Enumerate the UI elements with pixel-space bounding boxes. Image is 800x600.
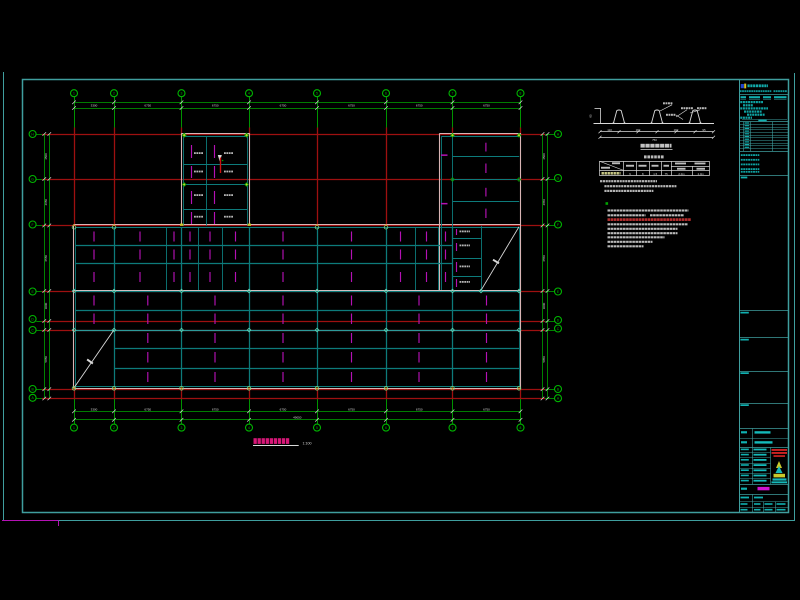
svg-text:F: F xyxy=(557,223,559,227)
svg-text:5: 5 xyxy=(316,92,318,96)
svg-text:2.0m: 2.0m xyxy=(678,172,685,176)
svg-text:65: 65 xyxy=(589,114,593,117)
svg-text:750: 750 xyxy=(652,138,657,142)
svg-text:4500: 4500 xyxy=(44,153,48,160)
svg-text:4: 4 xyxy=(248,426,250,430)
svg-text:6550: 6550 xyxy=(44,255,48,262)
svg-text:6750: 6750 xyxy=(144,407,151,411)
svg-text:3300: 3300 xyxy=(91,407,98,411)
svg-text:4: 4 xyxy=(248,92,250,96)
svg-text:8: 8 xyxy=(520,92,522,96)
svg-text:6750: 6750 xyxy=(483,407,490,411)
svg-text:183: 183 xyxy=(674,128,679,132)
svg-text:95: 95 xyxy=(702,128,706,132)
svg-text:G: G xyxy=(557,176,560,180)
svg-text:F: F xyxy=(32,223,34,227)
svg-text:3300: 3300 xyxy=(91,104,98,108)
svg-text:6750: 6750 xyxy=(212,407,219,411)
svg-text:6750: 6750 xyxy=(212,104,219,108)
svg-text:4650: 4650 xyxy=(44,199,48,206)
svg-text:1:100: 1:100 xyxy=(303,441,312,445)
svg-text:7: 7 xyxy=(452,92,454,96)
svg-text:6: 6 xyxy=(385,92,387,96)
svg-text:8: 8 xyxy=(520,426,522,430)
svg-text:1.5: 1.5 xyxy=(653,172,657,176)
svg-text:6750: 6750 xyxy=(348,407,355,411)
svg-text:6750: 6750 xyxy=(416,104,423,108)
svg-text:3000: 3000 xyxy=(542,302,546,309)
svg-text:7: 7 xyxy=(452,426,454,430)
svg-text:6750: 6750 xyxy=(483,104,490,108)
svg-text:6750: 6750 xyxy=(280,104,287,108)
svg-text:1: 1 xyxy=(73,426,75,430)
svg-text:75: 75 xyxy=(665,172,669,176)
svg-text:2: 2 xyxy=(113,426,115,430)
svg-text:2: 2 xyxy=(113,92,115,96)
svg-text:6750: 6750 xyxy=(144,104,151,108)
svg-text:5850: 5850 xyxy=(44,356,48,363)
svg-text:183: 183 xyxy=(636,128,641,132)
svg-text:1: 1 xyxy=(73,92,75,96)
svg-text:5850: 5850 xyxy=(542,356,546,363)
svg-text:3: 3 xyxy=(181,92,183,96)
svg-text:4500: 4500 xyxy=(542,153,546,160)
svg-text:3000: 3000 xyxy=(44,302,48,309)
svg-text:6750: 6750 xyxy=(416,407,423,411)
svg-text:2.0m: 2.0m xyxy=(698,172,705,176)
svg-text:6550: 6550 xyxy=(542,255,546,262)
svg-text:6750: 6750 xyxy=(280,407,287,411)
svg-text:6: 6 xyxy=(385,426,387,430)
svg-text:6750: 6750 xyxy=(348,104,355,108)
svg-text:110: 110 xyxy=(607,128,612,132)
svg-text:49050: 49050 xyxy=(293,416,302,420)
svg-text:3: 3 xyxy=(181,426,183,430)
svg-text:G: G xyxy=(31,177,34,181)
svg-text:4650: 4650 xyxy=(542,199,546,206)
svg-text:5: 5 xyxy=(316,426,318,430)
